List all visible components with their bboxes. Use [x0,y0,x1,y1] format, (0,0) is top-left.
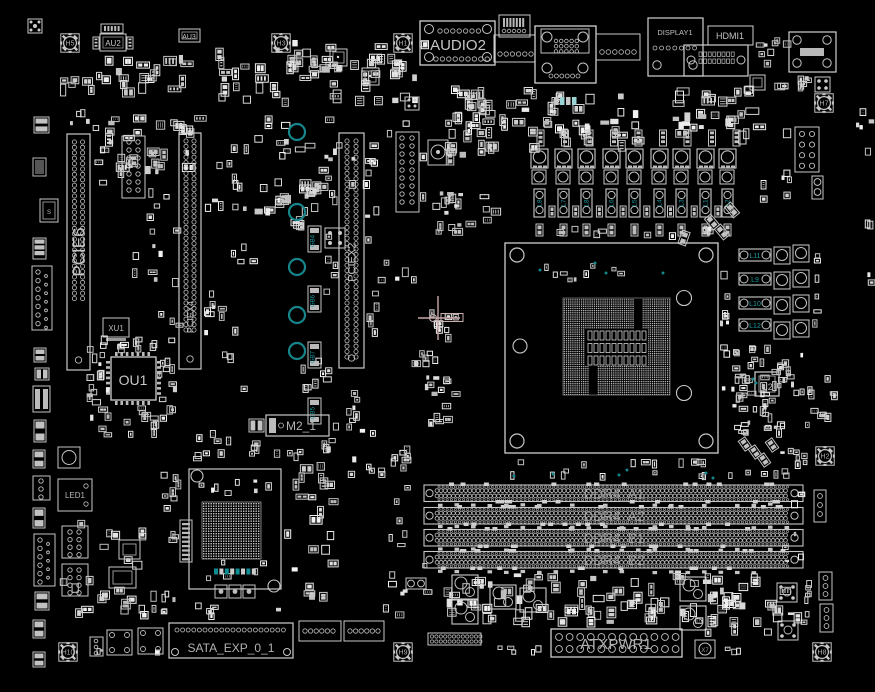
svg-text:AU2: AU2 [105,39,121,48]
svg-text:L6: L6 [609,199,616,207]
svg-text:DDR4_A2: DDR4_A2 [584,509,645,524]
svg-text:SATA_EXP_0_1: SATA_EXP_0_1 [188,641,275,655]
svg-text:H1: H1 [399,41,408,48]
svg-text:H8: H8 [818,650,827,657]
svg-text:H5: H5 [66,41,75,48]
svg-text:M2_1: M2_1 [286,419,316,433]
svg-text:L7: L7 [561,199,568,207]
svg-text:PCIEX4: PCIEX4 [185,301,195,333]
svg-text:LED1: LED1 [65,491,86,500]
svg-text:H7: H7 [820,101,829,108]
svg-text:L3: L3 [679,199,686,207]
svg-text:L11: L11 [749,253,760,260]
svg-text:L1: L1 [703,199,710,207]
svg-text:L4: L4 [657,199,664,207]
svg-text:AU3: AU3 [182,34,196,41]
svg-text:DDR4_A1: DDR4_A1 [584,487,645,502]
svg-text:H2: H2 [821,454,830,461]
svg-text:L12: L12 [749,323,761,330]
svg-text:L8: L8 [537,199,544,207]
svg-text:GB7: GB7 [311,350,317,363]
svg-text:HDMI1: HDMI1 [716,31,744,41]
svg-text:PCIEX2: PCIEX2 [346,243,358,282]
svg-text:GB6: GB6 [311,294,317,307]
svg-text:L8: L8 [584,199,591,207]
svg-text:AUDIO2: AUDIO2 [430,37,486,54]
svg-text:XU1: XU1 [108,324,124,333]
svg-text:OU1: OU1 [119,372,148,388]
svg-text:DISPLAY1: DISPLAY1 [657,28,692,37]
svg-text:DDR4_B2: DDR4_B2 [584,553,645,568]
svg-text:S: S [47,210,51,216]
svg-text:H3: H3 [277,41,286,48]
svg-text:H9: H9 [399,650,408,657]
svg-text:GB4: GB4 [311,234,317,247]
svg-text:H10: H10 [62,650,75,657]
svg-text:ATXPWR1: ATXPWR1 [580,636,651,653]
svg-text:PCIE6: PCIE6 [70,227,89,276]
svg-text:GB5: GB5 [311,406,317,419]
svg-text:L5: L5 [632,199,639,207]
svg-text:L9: L9 [751,277,759,284]
svg-text:X7: X7 [701,648,709,654]
svg-text:DDR4_B1: DDR4_B1 [584,531,645,546]
svg-text:L10: L10 [749,301,761,308]
